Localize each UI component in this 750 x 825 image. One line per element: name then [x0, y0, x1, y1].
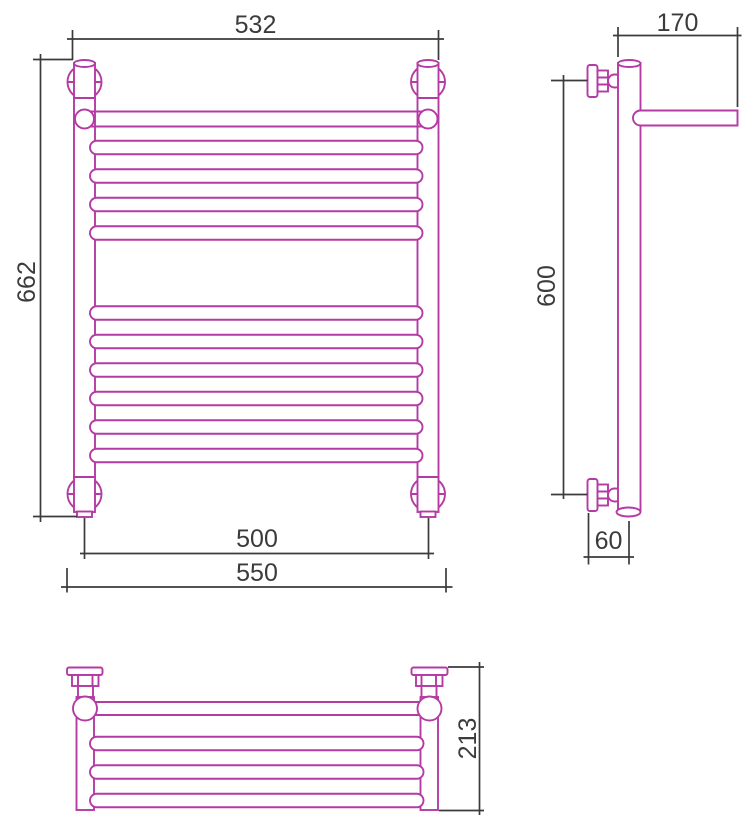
dim-label-plan-depth: 213 [454, 718, 482, 760]
bottom-valve-fitting [588, 479, 623, 511]
dim-label-side-depth: 170 [657, 9, 699, 37]
rung [90, 306, 423, 320]
rung [90, 226, 423, 240]
dim-label-front-overall-width: 550 [236, 559, 278, 587]
dim-front-axis-width: 500 [80, 518, 434, 559]
technical-drawing-page: 532 662 500 550 170 600 60 [0, 0, 750, 825]
dim-label-side-wall-offset: 60 [595, 527, 623, 555]
pipe-top-caps [74, 60, 439, 67]
rung [90, 737, 424, 751]
side-pipe [617, 60, 641, 517]
rung-group-bottom [90, 306, 423, 462]
wall-bracket-circles [68, 65, 446, 511]
rung [90, 169, 423, 183]
plan-rungs [90, 737, 424, 808]
dim-label-side-height: 600 [533, 265, 561, 307]
dim-label-front-top-width: 532 [235, 11, 277, 39]
side-view [588, 60, 738, 517]
rung [90, 141, 423, 155]
top-rail [75, 110, 438, 129]
right-pipe [418, 63, 439, 512]
front-view [68, 60, 446, 517]
dim-front-height: 662 [13, 54, 77, 522]
dim-label-front-axis-width: 500 [236, 525, 278, 553]
dim-front-overall-width: 550 [61, 559, 453, 593]
rung [90, 392, 423, 406]
rung [90, 198, 423, 212]
dim-side-height: 600 [533, 75, 588, 499]
rung [90, 765, 424, 779]
left-pipe [74, 63, 95, 512]
rung [90, 335, 423, 349]
plan-rail [73, 697, 442, 721]
plan-left-fitting [67, 668, 103, 699]
dim-plan-depth: 213 [439, 662, 484, 815]
rung-group-top [90, 141, 423, 240]
dim-front-top-width: 532 [67, 11, 444, 60]
plan-view [67, 668, 448, 811]
rung [90, 363, 423, 377]
top-valve-fitting [588, 65, 623, 97]
dim-side-wall-offset: 60 [584, 513, 635, 565]
rung [90, 420, 423, 434]
dim-label-front-height: 662 [13, 261, 41, 303]
rung [90, 794, 424, 808]
pipe-feet [77, 512, 436, 518]
side-rail [633, 111, 738, 126]
plan-right-fitting [412, 668, 448, 699]
towel-rail-drawing: 532 662 500 550 170 600 60 [0, 0, 750, 825]
rung [90, 449, 423, 463]
